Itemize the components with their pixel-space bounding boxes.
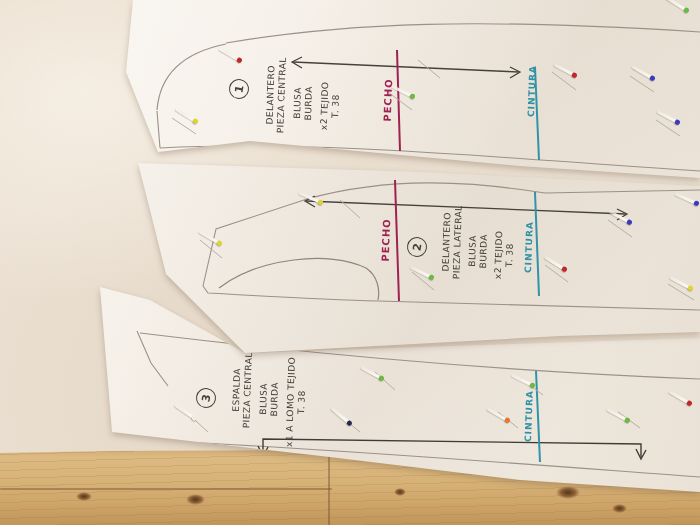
photo-sewing-patterns: 3 ESPALDA PIEZA CENTRAL BLUSA BURDA x1 A… xyxy=(0,0,700,525)
piece-name-label: DELANTERO PIEZA CENTRAL xyxy=(264,57,288,134)
cut-line xyxy=(157,111,160,148)
grainline-arrow xyxy=(293,62,519,72)
cutting-instructions-label: x2 TEJIDO T. 38 xyxy=(319,81,342,130)
waist-label: CINTURA xyxy=(526,65,538,117)
arrowhead-right-icon xyxy=(510,67,520,78)
cut-line xyxy=(226,24,700,43)
pencil-marks xyxy=(172,60,680,136)
pattern-1-drawing xyxy=(0,0,700,525)
cut-line xyxy=(160,146,700,171)
neckline xyxy=(157,44,226,110)
garment-label: BLUSA BURDA xyxy=(292,86,314,121)
pattern-piece-1: 1 DELANTERO PIEZA CENTRAL BLUSA BURDA x2… xyxy=(0,0,700,525)
